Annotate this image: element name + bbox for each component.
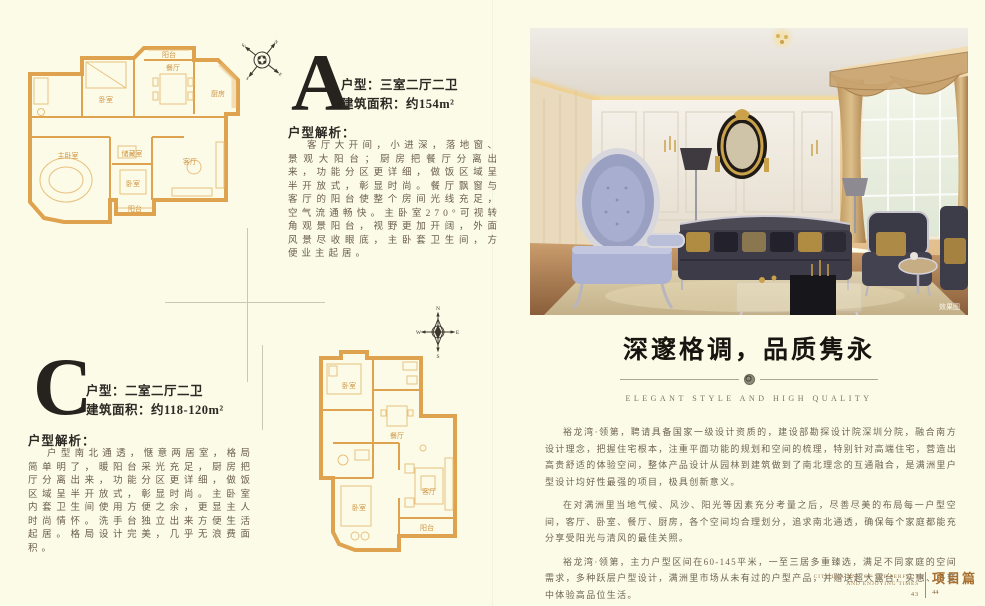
room-label-living: 客厅 xyxy=(422,487,436,496)
divider-line-right xyxy=(760,379,879,380)
armchair-far-right xyxy=(940,206,968,290)
footer-tagline-line1: CITY LEADING OF THE PERFECT xyxy=(814,574,919,581)
divider-ornament-icon xyxy=(744,374,755,385)
room-label-living: 客厅 xyxy=(183,157,197,166)
headline-divider xyxy=(620,374,878,385)
plan-c-type: 户型：二室二厅二卫 xyxy=(86,382,224,401)
compass-letter-e: E xyxy=(278,72,283,78)
room-label-bedroom-top: 卧室 xyxy=(342,381,356,390)
chandelier-icon xyxy=(773,29,791,47)
page-footer: CITY LEADING OF THE PERFECT AND ENJOYING… xyxy=(814,572,981,598)
interior-photo: 效果图 xyxy=(530,28,968,315)
compass-letter-n: N xyxy=(436,306,440,312)
plan-a-letter: A xyxy=(291,46,348,120)
plan-c-analysis-text: 户型南北通透，惬意两居室，格局简单明了，暖阳台采光充足，厨房把厅分离出来，功能分… xyxy=(28,448,254,556)
room-label-bedroom3: 卧室 xyxy=(126,179,140,188)
feature-paragraph-1: 裕龙湾·领第，聘请具备国家一级设计资质的，建设部勘探设计院深圳分院，融合南方设计… xyxy=(545,424,957,490)
footer-section: 项目篇 44 xyxy=(932,572,981,598)
footer-tagline: CITY LEADING OF THE PERFECT AND ENJOYING… xyxy=(814,572,925,598)
room-label-storage: 储藏室 xyxy=(122,149,143,158)
plan-a-analysis-text: 客厅大开间，小进深，落地窗、景观大阳台；厨房把餐厅分离出来，功能分区更详细，做饭… xyxy=(288,140,501,262)
divider-line-left xyxy=(620,379,739,380)
feature-subheadline: ELEGANT STYLE AND HIGH QUALITY xyxy=(530,394,968,403)
divider-vertical-line-2 xyxy=(262,345,263,430)
feature-paragraph-2: 在对满洲里当地气候、风沙、阳光等因素充分考量之后，尽善尽美的布局每一户型空间，客… xyxy=(545,497,957,547)
floor-plan-a: 阳台 卧室 餐厅 厨房 主卧室 储藏室 卧室 客厅 阳台 xyxy=(22,22,247,234)
room-label-master: 主卧室 xyxy=(58,151,79,160)
floor-plan-c: 卧室 餐厅 客厅 卧室 阳台 xyxy=(303,348,475,563)
compass-letter-s: S xyxy=(245,76,250,82)
brochure-spread: 阳台 卧室 餐厅 厨房 主卧室 储藏室 卧室 客厅 阳台 N xyxy=(0,0,985,606)
armchair-right xyxy=(862,212,932,296)
section-label: 项目篇 xyxy=(932,572,977,586)
feature-headline: 深邃格调，品质隽永 xyxy=(530,330,968,366)
plan-a-spec: 户型：三室二厅二卫 建筑面积：约154m² xyxy=(341,76,458,115)
room-label-balcony-top: 阳台 xyxy=(162,50,176,59)
page-number-right: 44 xyxy=(932,589,977,596)
compass-letter-e: E xyxy=(456,330,460,336)
room-label-balcony-bottom: 阳台 xyxy=(128,204,142,213)
page-number-left: 43 xyxy=(814,591,919,598)
plan-a-type: 户型：三室二厅二卫 xyxy=(341,76,458,95)
plan-c-analysis-title: 户型解析： xyxy=(28,430,96,449)
room-label-dining: 餐厅 xyxy=(166,63,180,72)
plan-c-letter: C xyxy=(33,350,90,424)
compass-icon-a: N S W E xyxy=(236,34,288,86)
plan-c-spec: 户型：二室二厅二卫 建筑面积：约118-120m² xyxy=(86,382,224,421)
divider-horizontal-line xyxy=(165,302,325,303)
footer-tagline-line2: AND ENJOYING TIMES xyxy=(814,581,919,588)
plan-c-area: 建筑面积：约118-120m² xyxy=(86,401,224,420)
compass-letter-w: W xyxy=(416,330,422,336)
plan-a-analysis-title: 户型解析： xyxy=(288,122,356,141)
footer-divider xyxy=(925,572,926,598)
room-label-kitchen: 厨房 xyxy=(211,89,225,98)
divider-vertical-line xyxy=(247,228,248,382)
photo-watermark: 效果图 xyxy=(939,302,960,311)
room-label-balcony: 阳台 xyxy=(420,523,434,532)
room-label-bedroom2: 卧室 xyxy=(99,95,113,104)
page-gutter xyxy=(492,0,493,606)
plan-a-area: 建筑面积：约154m² xyxy=(341,95,458,114)
room-label-dining: 餐厅 xyxy=(390,431,404,440)
room-label-bedroom-bottom: 卧室 xyxy=(352,503,366,512)
